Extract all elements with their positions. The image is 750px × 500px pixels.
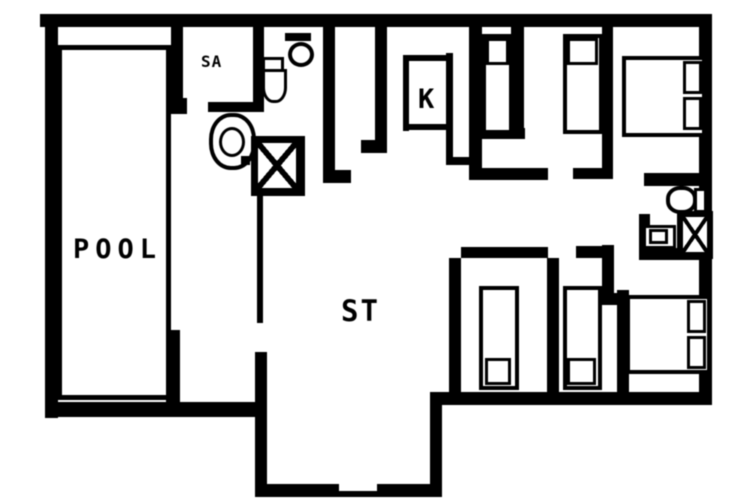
toilet-tank [694, 188, 707, 213]
wall-segment [644, 173, 712, 186]
wall-segment [430, 392, 712, 405]
pillow [486, 38, 509, 65]
room-label-pool: POOL [73, 234, 162, 265]
pillow [683, 97, 702, 130]
wall-segment [547, 258, 559, 392]
sink-basin [649, 229, 668, 244]
wall-segment [208, 102, 264, 112]
wall-segment [602, 27, 613, 173]
pillow [683, 61, 702, 94]
toilet-icon [288, 42, 314, 67]
wall-segment [257, 188, 263, 323]
wall-segment [573, 168, 613, 179]
wall-segment [375, 27, 387, 145]
shower-xmark [683, 217, 707, 252]
floor-plan: POOL SA K ST [0, 0, 750, 500]
wall-segment [449, 258, 461, 392]
pillow [567, 38, 598, 65]
pillow [567, 358, 596, 385]
floor-plan-drawing: POOL SA K ST [0, 0, 750, 500]
wall-segment [469, 168, 548, 180]
wall-segment [45, 402, 267, 417]
toilet-icon [666, 186, 697, 214]
toilet-tank [285, 33, 311, 41]
wall-segment [469, 27, 482, 180]
room-label-kitchen: K [418, 84, 434, 115]
wall-segment [171, 27, 183, 108]
wall-segment [323, 170, 351, 183]
wall-segment [255, 352, 267, 497]
wall-segment [40, 14, 712, 27]
kitchen-counter-line [403, 55, 452, 61]
shower-xmark [258, 143, 296, 188]
pool-basin [57, 45, 171, 400]
wall-segment [166, 330, 180, 408]
toilet-detail [241, 156, 250, 165]
toilet-seat [219, 127, 245, 157]
room-label-sauna: SA [201, 52, 222, 71]
pillow [687, 300, 706, 333]
door-opening [339, 484, 377, 491]
kitchen-counter-line [446, 53, 453, 165]
pillow [485, 358, 511, 385]
sink-basin [262, 69, 287, 103]
room-label-living: ST [341, 294, 380, 328]
kitchen-counter-line [403, 124, 450, 130]
kitchen-counter-line [403, 55, 409, 131]
wall-segment [323, 27, 335, 177]
wall-segment [430, 392, 442, 497]
wall-segment [576, 246, 613, 258]
wall-segment [461, 247, 548, 258]
wall-segment [171, 98, 187, 114]
wall-segment [361, 140, 387, 153]
pillow [687, 336, 706, 369]
